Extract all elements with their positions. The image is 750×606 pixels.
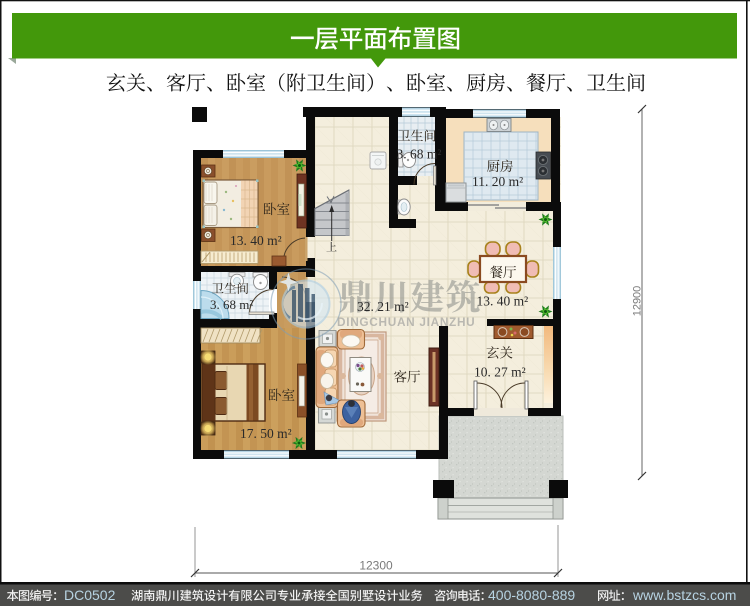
svg-text:3. 68 m²: 3. 68 m² [397, 147, 442, 162]
svg-text:13. 40 m²: 13. 40 m² [477, 294, 529, 309]
svg-text:10. 27 m²: 10. 27 m² [474, 365, 526, 380]
svg-text:13. 40 m²: 13. 40 m² [230, 233, 282, 248]
svg-text:12300: 12300 [359, 559, 393, 573]
svg-text:32. 21 m²: 32. 21 m² [357, 299, 409, 314]
svg-text:400-8080-889: 400-8080-889 [488, 587, 575, 603]
svg-text:11. 20 m²: 11. 20 m² [472, 174, 523, 189]
svg-text:12900: 12900 [632, 286, 644, 317]
svg-text:DINGCHUAN JIANZHU: DINGCHUAN JIANZHU [337, 315, 475, 329]
svg-text:3. 68 m²: 3. 68 m² [210, 297, 253, 312]
svg-text:www.bstzcs.com: www.bstzcs.com [632, 587, 736, 603]
svg-text:17. 50 m²: 17. 50 m² [240, 426, 292, 441]
svg-text:DC0502: DC0502 [64, 587, 116, 603]
